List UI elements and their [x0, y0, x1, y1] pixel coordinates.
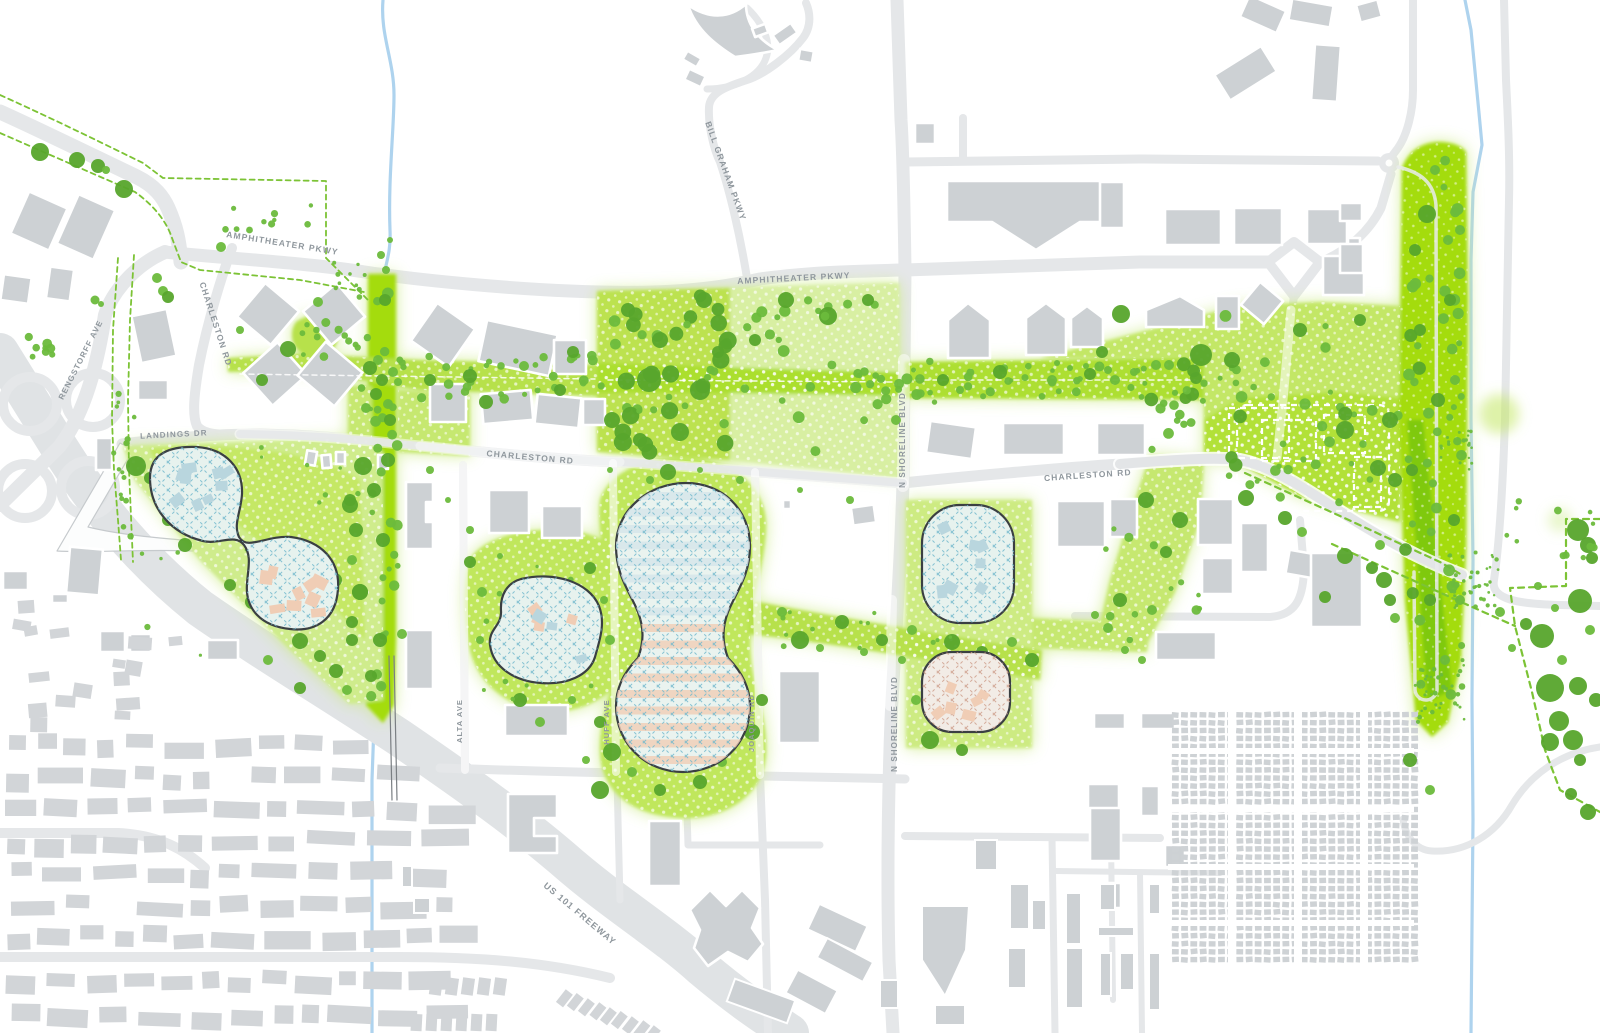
- svg-text:N SHORELINE BLVD: N SHORELINE BLVD: [890, 676, 899, 772]
- svg-text:JOAQUIN RD: JOAQUIN RD: [747, 694, 756, 752]
- svg-text:HUFF AVE: HUFF AVE: [602, 699, 611, 744]
- svg-text:ALTA AVE: ALTA AVE: [455, 699, 464, 743]
- svg-text:N SHORELINE BLVD: N SHORELINE BLVD: [898, 392, 907, 488]
